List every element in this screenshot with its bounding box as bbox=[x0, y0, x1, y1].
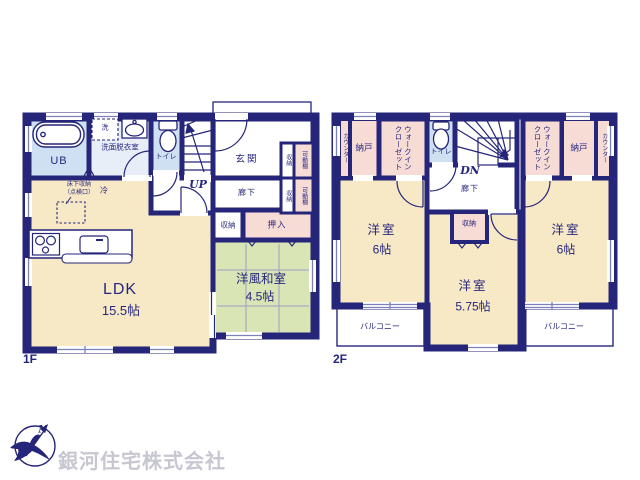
room-label-hall-2f: 廊下 bbox=[461, 184, 479, 194]
room-size-ldk: 15.5帖 bbox=[102, 303, 140, 319]
room-label-ub: UB bbox=[50, 155, 67, 169]
label-storage-unit1-shuno: 収納 bbox=[283, 154, 291, 166]
room-label-left: 洋室 bbox=[367, 223, 396, 239]
kitchen-icon bbox=[29, 230, 132, 263]
label-washing-machine: 洗 bbox=[102, 125, 109, 134]
room-label-senmen: 洗面脱衣室 bbox=[101, 142, 139, 151]
bathtub-icon bbox=[33, 122, 84, 147]
room-label-toilet-2f: トイレ bbox=[431, 149, 452, 158]
room-label-wic-left: ウォークイン クローゼット bbox=[394, 126, 413, 171]
label-counter-right: カウンター bbox=[599, 133, 607, 163]
room-label-nando-left: 納戸 bbox=[355, 143, 372, 154]
room-size-center: 5.75帖 bbox=[455, 300, 490, 315]
compass-icon bbox=[10, 424, 55, 466]
room-label-toilet-1f: トイレ bbox=[156, 154, 177, 163]
label-counter-left: カウンター bbox=[340, 133, 348, 163]
floor1-tag: 1F bbox=[23, 352, 37, 367]
floorplan-canvas: LDK 15.5帖 洋風和室 4.5帖 UB 洗 洗面脱衣室 トイレ UP 玄関… bbox=[0, 0, 640, 480]
label-balcony-left: バルコニー bbox=[360, 322, 400, 332]
room-label-nando-right: 納戸 bbox=[570, 143, 587, 154]
floor2-tag: 2F bbox=[333, 352, 347, 367]
label-fridge: 冷 bbox=[100, 186, 108, 196]
room-label-center: 洋室 bbox=[458, 279, 487, 295]
label-shuno-2f: 収納 bbox=[462, 221, 476, 230]
room-label-wic-right: ウォークイン クローゼット bbox=[533, 126, 552, 171]
label-oshiire: 押入 bbox=[267, 220, 286, 231]
toilet-icon-1f bbox=[159, 121, 177, 152]
room-size-right: 6帖 bbox=[557, 243, 576, 258]
toilet-icon-2f bbox=[433, 122, 449, 149]
label-storage-unit2-shuno: 収納 bbox=[283, 190, 291, 202]
room-label-right: 洋室 bbox=[551, 223, 580, 239]
stairs-dn-label: DN bbox=[460, 164, 480, 178]
label-storage-unit1-shelf: 可動棚 bbox=[299, 151, 307, 169]
label-balcony-right: バルコニー bbox=[544, 322, 584, 332]
compass-north-label: N bbox=[38, 425, 47, 436]
room-size-washitsu: 4.5帖 bbox=[246, 290, 275, 305]
sink-icon bbox=[122, 119, 147, 138]
room-label-washitsu: 洋風和室 bbox=[236, 272, 286, 288]
room-size-left: 6帖 bbox=[373, 243, 392, 258]
room-label-ldk: LDK bbox=[103, 280, 137, 300]
stairs-up-label: UP bbox=[189, 178, 207, 192]
label-underfloor-storage: 床下収納 （点検口） bbox=[64, 182, 94, 198]
label-storage-unit2-shelf: 可動棚 bbox=[299, 187, 307, 205]
room-label-genkan: 玄関 bbox=[235, 154, 258, 166]
company-watermark: 銀河住宅株式会社 bbox=[58, 445, 226, 474]
floorplan-drawing bbox=[0, 0, 640, 480]
room-label-hall-1f: 廊下 bbox=[238, 188, 256, 198]
label-shuno-1f: 収納 bbox=[221, 220, 236, 229]
